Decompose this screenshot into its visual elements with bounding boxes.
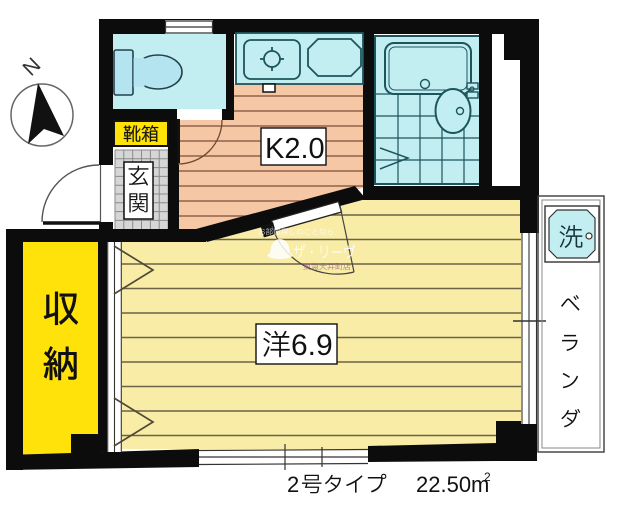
svg-text:6.9: 6.9 xyxy=(291,329,333,362)
svg-text:2: 2 xyxy=(484,470,491,484)
svg-text:22.50m: 22.50m xyxy=(416,472,489,497)
svg-text:K2.0: K2.0 xyxy=(265,133,325,165)
svg-text:2: 2 xyxy=(287,472,299,497)
